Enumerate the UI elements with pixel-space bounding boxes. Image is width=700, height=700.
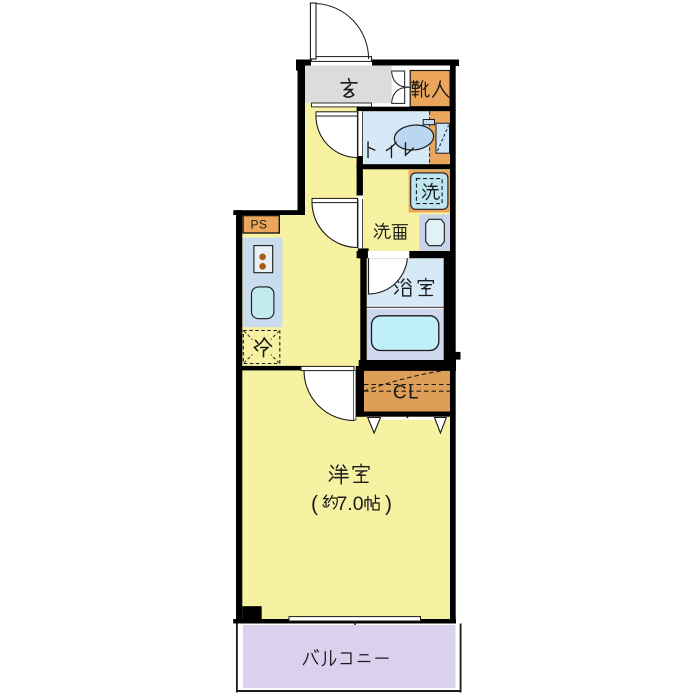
svg-text:CL: CL	[393, 383, 420, 404]
svg-text:(: (	[311, 493, 318, 516]
svg-text:): )	[385, 493, 392, 516]
svg-text:7.0: 7.0	[336, 493, 363, 515]
svg-text:PS: PS	[250, 218, 267, 232]
